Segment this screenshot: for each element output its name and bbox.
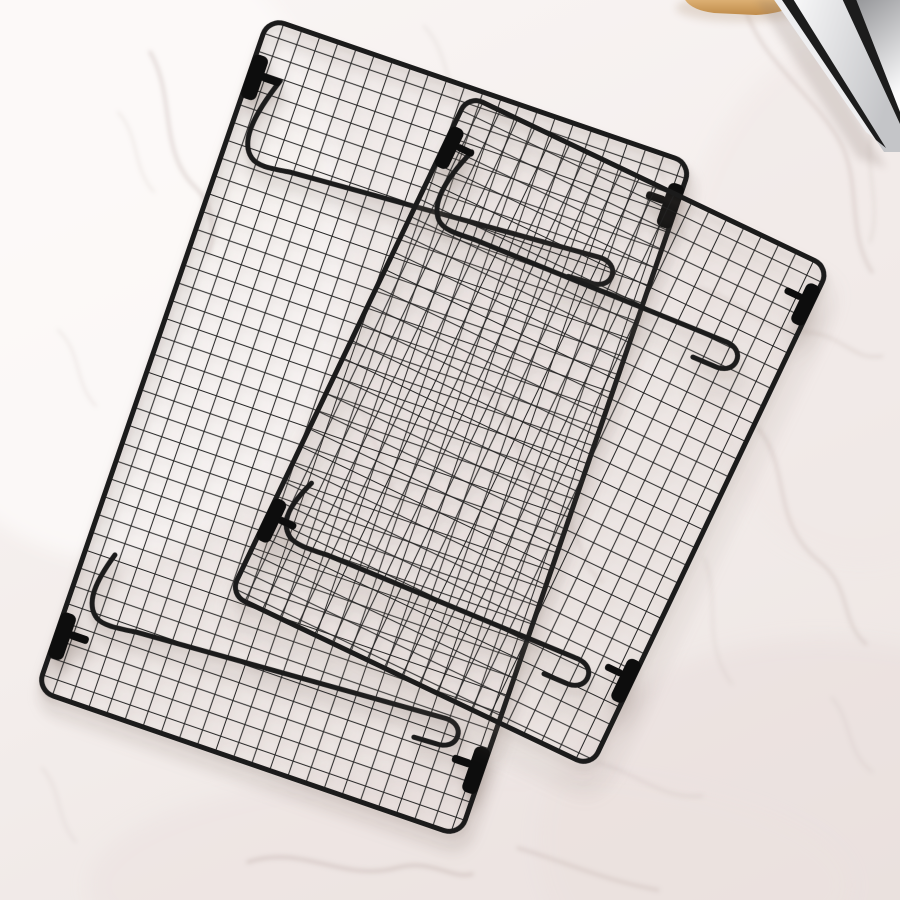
product-photo [0, 0, 900, 900]
